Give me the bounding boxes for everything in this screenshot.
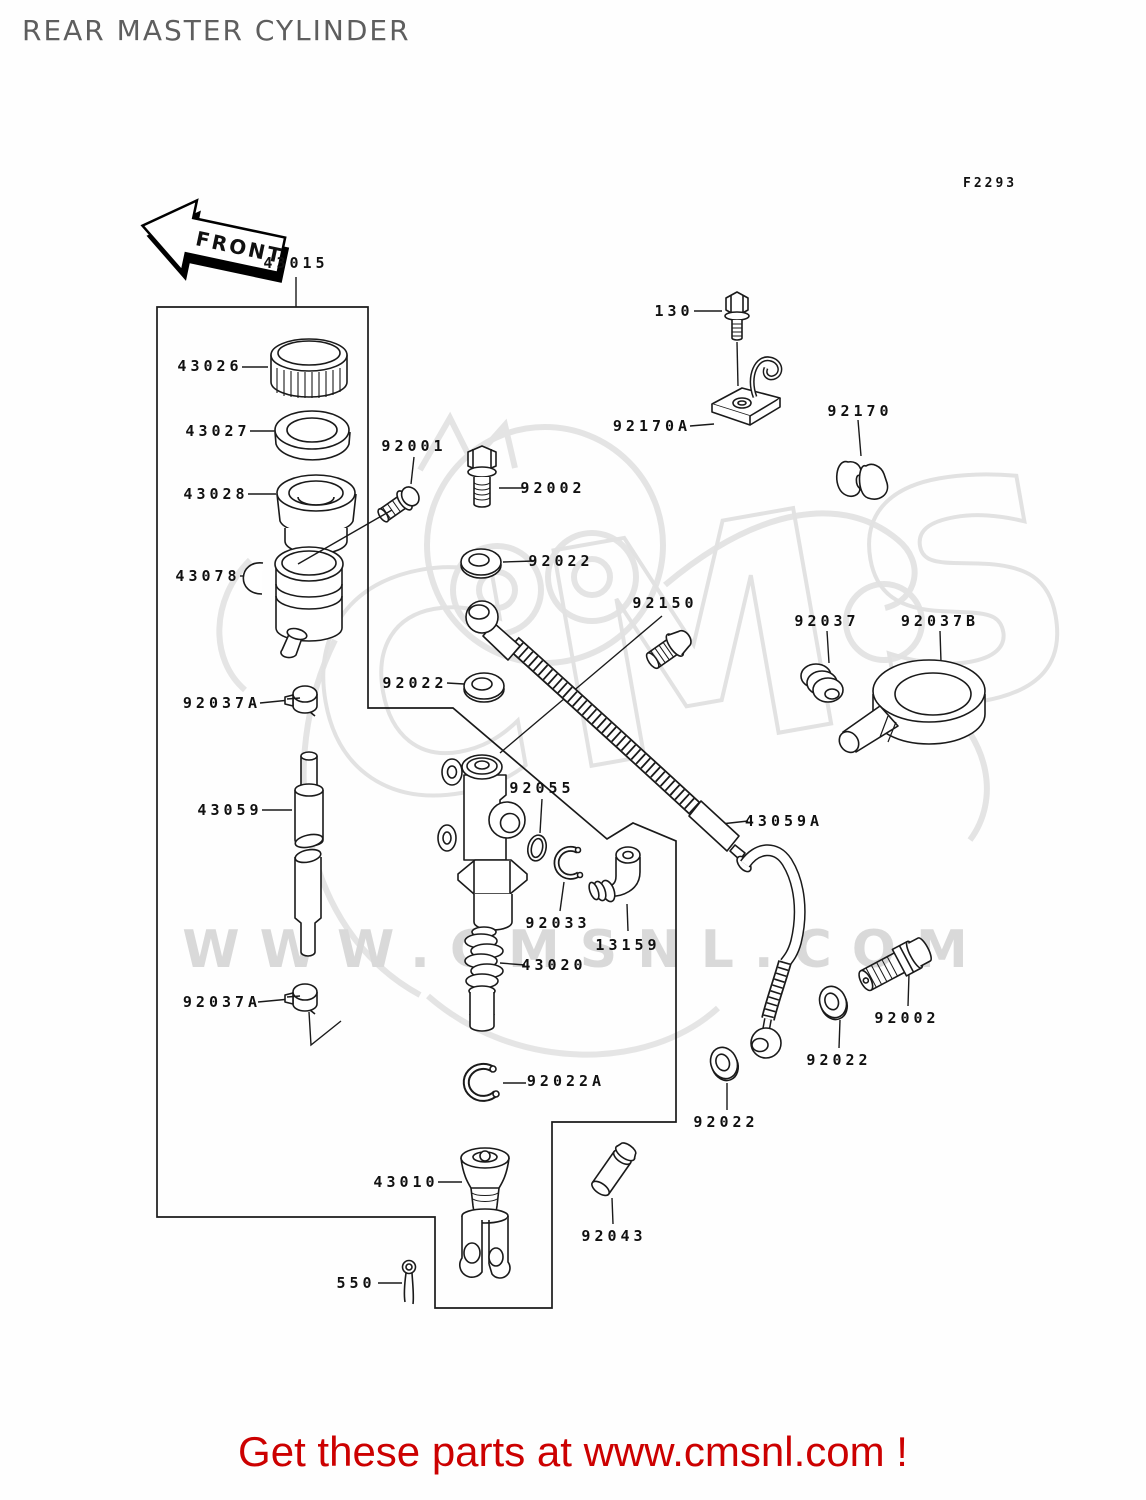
parts-diagram-canvas: CMS WWW.CMSNL.COM FRONT xyxy=(0,0,1146,1500)
footer-promo-link[interactable]: Get these parts at www.cmsnl.com ! xyxy=(0,1428,1146,1476)
part-label-92033: 92033 xyxy=(525,914,590,932)
part-label-43015: 43015 xyxy=(263,254,328,272)
part-label-92037a-lower: 92037A xyxy=(183,993,261,1011)
part-hose-clamp-92037a-upper xyxy=(285,686,317,716)
part-pipe-clamp-92170 xyxy=(837,462,888,499)
part-label-92037: 92037 xyxy=(794,612,859,630)
part-circlip-92033 xyxy=(557,848,583,878)
part-label-92170a: 92170A xyxy=(613,417,691,435)
part-label-92002-top: 92002 xyxy=(520,479,585,497)
part-washer-92022-top xyxy=(461,549,501,578)
part-label-43059: 43059 xyxy=(197,801,262,819)
part-label-92037b: 92037B xyxy=(901,612,979,630)
part-cap-43026 xyxy=(271,339,347,398)
part-piston-spring-43020 xyxy=(465,927,503,1031)
part-label-92022-bottommid: 92022 xyxy=(806,1051,871,1069)
part-label-92002-bottom: 92002 xyxy=(874,1009,939,1027)
part-washer-92022-bottom-mid xyxy=(815,982,852,1023)
part-label-92150: 92150 xyxy=(632,594,697,612)
part-elbow-13159 xyxy=(587,847,640,903)
part-label-92022-top: 92022 xyxy=(528,552,593,570)
part-label-43020: 43020 xyxy=(521,956,586,974)
part-label-43059a: 43059A xyxy=(745,812,823,830)
part-label-92037a-upper: 92037A xyxy=(183,694,261,712)
part-label-43026: 43026 xyxy=(177,357,242,375)
part-label-43010: 43010 xyxy=(373,1173,438,1191)
part-label-92022-bottomleft: 92022 xyxy=(693,1113,758,1131)
part-cotter-pin-550 xyxy=(403,1261,416,1305)
front-direction-arrow: FRONT xyxy=(133,190,295,300)
part-label-43027: 43027 xyxy=(185,422,250,440)
part-pushrod-clevis-43010 xyxy=(460,1148,510,1278)
part-clamp-plate-92170a xyxy=(712,359,780,425)
part-washer-92022-mid xyxy=(464,673,504,702)
part-label-92001: 92001 xyxy=(381,437,446,455)
part-label-92055: 92055 xyxy=(509,779,574,797)
part-washer-92022-bottom-left xyxy=(706,1043,743,1084)
part-ring-43027 xyxy=(275,411,350,460)
part-label-92022-midleft: 92022 xyxy=(382,674,447,692)
part-joint-pin-92043 xyxy=(589,1139,640,1198)
parts-fiche-page: CMS WWW.CMSNL.COM FRONT xyxy=(0,0,1146,1500)
part-label-92022a: 92022A xyxy=(527,1072,605,1090)
part-label-92043: 92043 xyxy=(581,1227,646,1245)
part-label-43078: 43078 xyxy=(175,567,240,585)
part-label-13159: 13159 xyxy=(595,936,660,954)
page-title: REAR MASTER CYLINDER xyxy=(22,14,411,47)
part-banjo-bolt-92002 xyxy=(468,446,496,507)
part-label-550: 550 xyxy=(336,1274,375,1292)
part-bolt-130 xyxy=(725,292,749,340)
part-label-130: 130 xyxy=(654,302,693,320)
part-hose-clamp-92037a-lower xyxy=(285,984,317,1014)
fiche-code: F2293 xyxy=(963,176,1017,191)
part-label-43028: 43028 xyxy=(183,485,248,503)
part-cup-43028 xyxy=(277,475,356,554)
part-circlip-92022a xyxy=(466,1066,499,1098)
part-label-92170: 92170 xyxy=(827,402,892,420)
